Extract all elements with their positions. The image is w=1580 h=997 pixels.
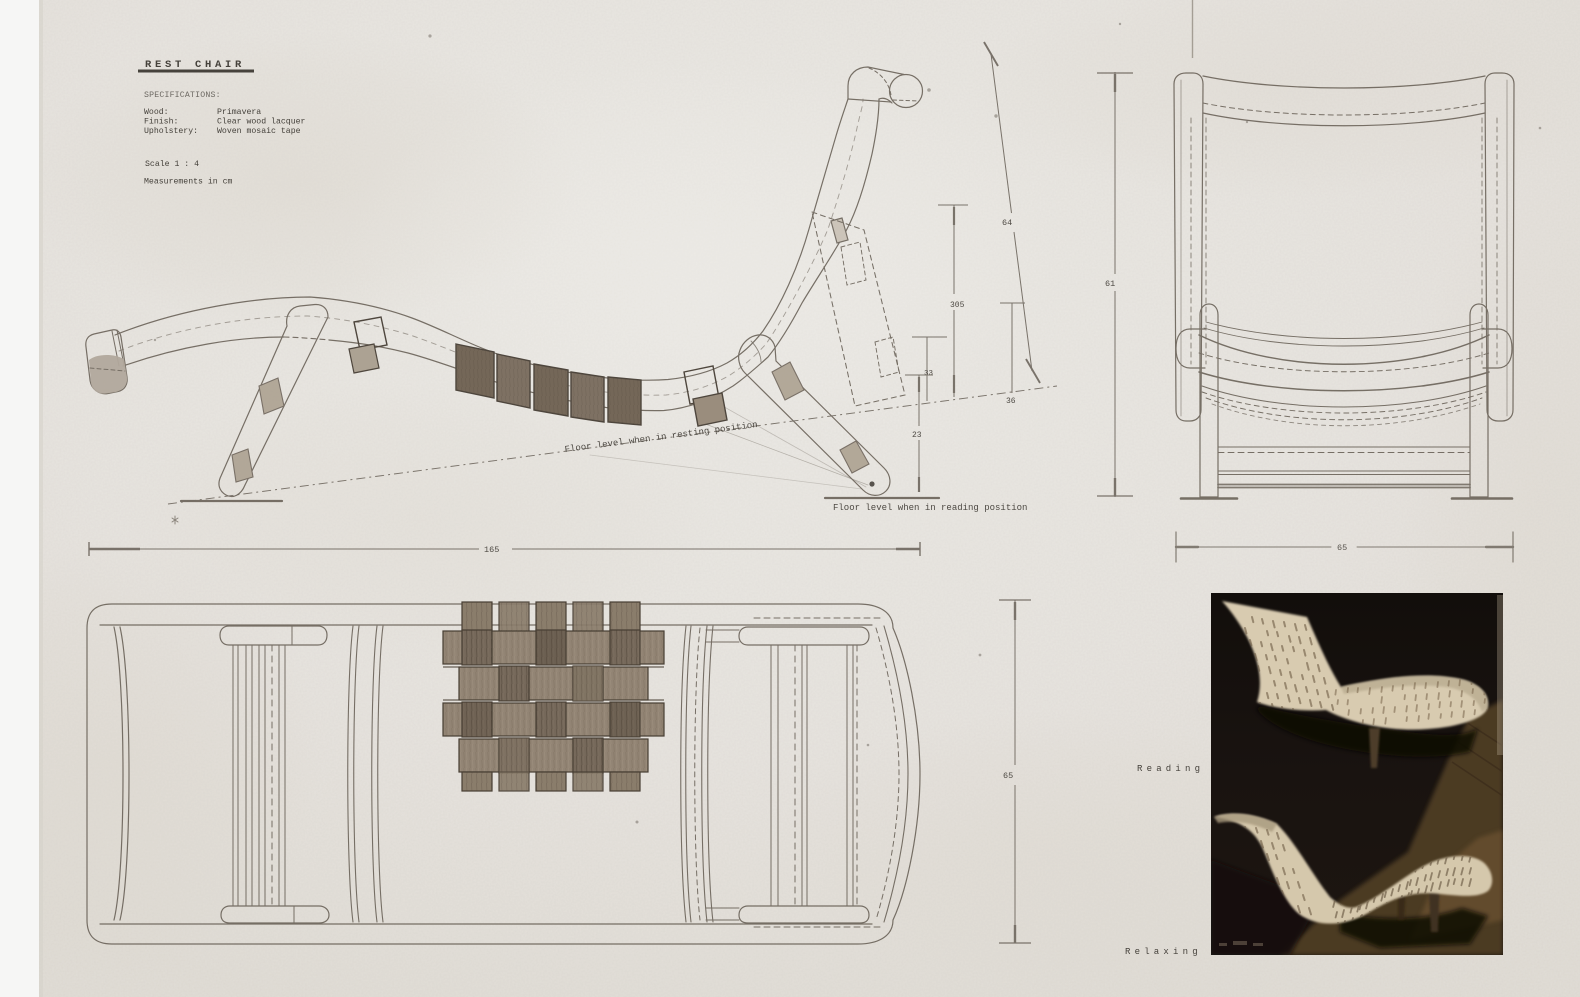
svg-text:Clear wood lacquer: Clear wood lacquer <box>217 117 306 127</box>
svg-text:Floor level when in reading po: Floor level when in reading position <box>833 503 1027 513</box>
svg-text:33: 33 <box>924 370 934 378</box>
svg-text:Upholstery:: Upholstery: <box>144 126 198 136</box>
svg-text:Primavera: Primavera <box>217 107 261 117</box>
svg-text:23: 23 <box>912 431 922 440</box>
svg-text:36: 36 <box>1006 397 1016 406</box>
svg-text:305: 305 <box>950 301 965 310</box>
svg-text:Measurements in cm: Measurements in cm <box>144 177 233 187</box>
svg-text:61: 61 <box>1105 279 1115 289</box>
svg-text:Relaxing: Relaxing <box>1125 947 1202 957</box>
svg-text:65: 65 <box>1337 543 1347 553</box>
svg-text:Woven mosaic tape: Woven mosaic tape <box>217 126 301 136</box>
svg-text:SPECIFICATIONS:: SPECIFICATIONS: <box>144 91 221 100</box>
svg-text:Finish:: Finish: <box>144 117 178 127</box>
svg-text:Reading: Reading <box>1137 764 1204 774</box>
svg-text:65: 65 <box>1003 771 1013 781</box>
svg-text:Scale 1 : 4: Scale 1 : 4 <box>145 159 199 169</box>
svg-text:Wood:: Wood: <box>144 107 169 117</box>
svg-text:165: 165 <box>484 545 499 555</box>
svg-text:REST CHAIR: REST CHAIR <box>145 59 245 71</box>
svg-text:64: 64 <box>1002 218 1012 228</box>
